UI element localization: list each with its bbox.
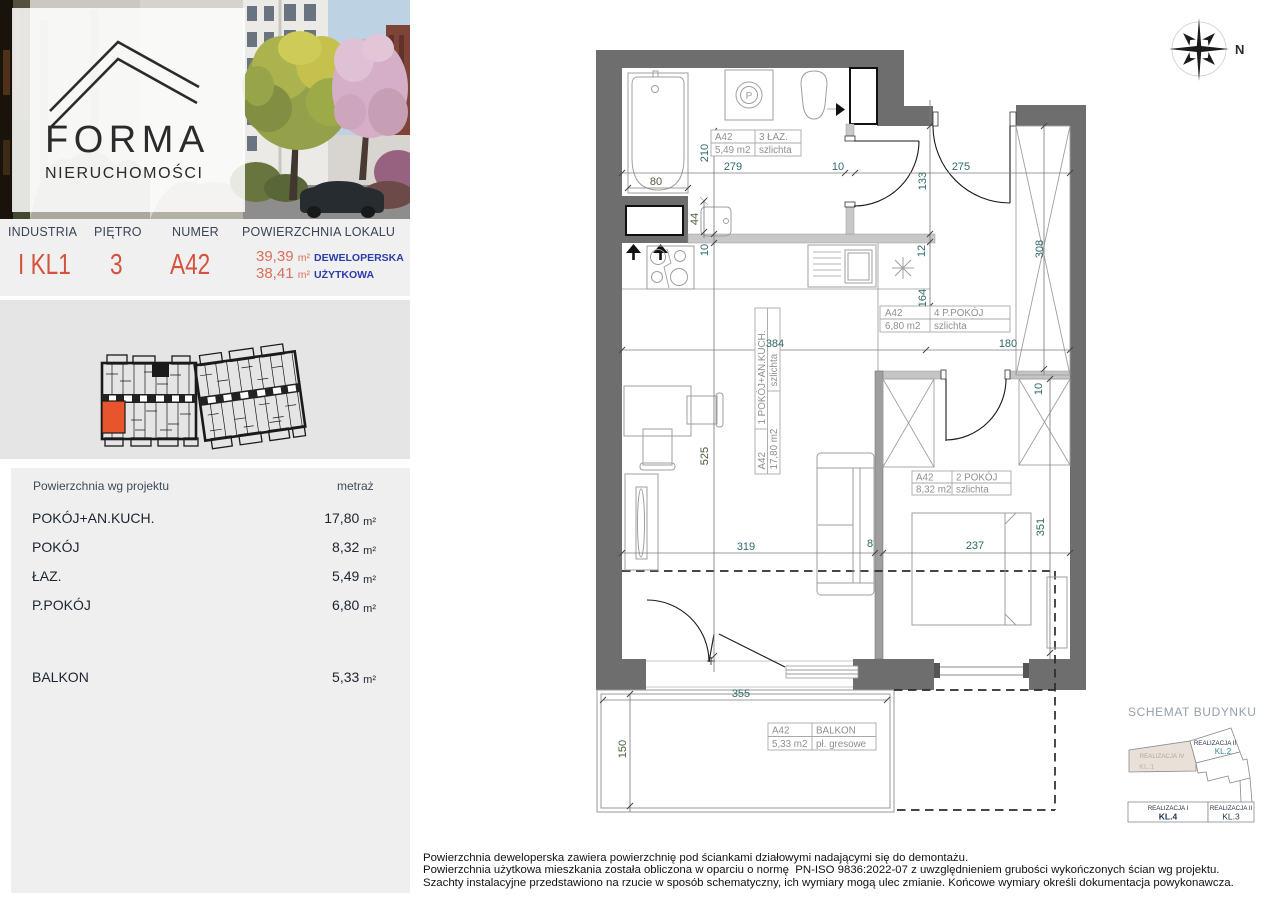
svg-text:80: 80	[650, 176, 662, 188]
svg-text:10: 10	[832, 161, 844, 173]
svg-text:279: 279	[724, 161, 742, 173]
svg-text:KL.4: KL.4	[1159, 812, 1178, 822]
svg-text:210: 210	[699, 144, 711, 162]
svg-text:pł. gresowe: pł. gresowe	[816, 739, 867, 750]
svg-text:355: 355	[732, 688, 750, 700]
svg-text:10: 10	[699, 244, 711, 256]
svg-text:150: 150	[617, 740, 629, 758]
svg-text:3 ŁAZ.: 3 ŁAZ.	[759, 132, 788, 143]
svg-text:164: 164	[917, 289, 929, 307]
svg-text:2 POKÓJ: 2 POKÓJ	[956, 473, 997, 484]
svg-text:8: 8	[867, 538, 873, 550]
svg-text:A42: A42	[772, 726, 789, 737]
svg-text:6,80 m2: 6,80 m2	[885, 321, 920, 332]
svg-text:180: 180	[999, 338, 1017, 350]
svg-text:BALKON: BALKON	[816, 726, 856, 737]
svg-text:REALIZACJA II: REALIZACJA II	[1194, 740, 1237, 747]
svg-text:525: 525	[699, 447, 711, 465]
svg-text:N: N	[1235, 42, 1244, 57]
svg-text:10: 10	[1033, 383, 1045, 395]
svg-text:KL.1: KL.1	[1139, 762, 1154, 771]
svg-text:KL.3: KL.3	[1222, 812, 1240, 822]
svg-text:5,49 m2: 5,49 m2	[715, 145, 750, 156]
svg-text:44: 44	[689, 213, 701, 225]
svg-text:12: 12	[916, 245, 928, 257]
svg-text:133: 133	[917, 172, 929, 190]
svg-text:A42: A42	[916, 473, 933, 484]
svg-text:A42: A42	[715, 132, 732, 143]
svg-text:szlichta: szlichta	[934, 321, 967, 332]
svg-text:8,32 m2: 8,32 m2	[916, 485, 951, 496]
svg-text:szlichta: szlichta	[759, 145, 792, 156]
svg-text:351: 351	[1035, 518, 1047, 536]
svg-text:szlichta: szlichta	[956, 485, 989, 496]
svg-text:szlichta: szlichta	[769, 353, 780, 386]
svg-text:4 P.POKÓJ: 4 P.POKÓJ	[934, 308, 983, 319]
svg-text:A42: A42	[757, 452, 768, 469]
svg-text:17,80 m2: 17,80 m2	[769, 429, 780, 470]
svg-text:P: P	[746, 91, 753, 102]
svg-text:237: 237	[966, 540, 984, 552]
svg-text:REALIZACJA IV: REALIZACJA IV	[1140, 753, 1186, 760]
svg-text:308: 308	[1034, 240, 1046, 258]
svg-text:384: 384	[766, 338, 784, 350]
svg-text:SCHEMAT BUDYNKU: SCHEMAT BUDYNKU	[1128, 705, 1257, 719]
svg-text:275: 275	[952, 161, 970, 173]
svg-text:A42: A42	[885, 308, 902, 319]
svg-text:319: 319	[737, 541, 755, 553]
svg-text:5,33 m2: 5,33 m2	[772, 739, 807, 750]
